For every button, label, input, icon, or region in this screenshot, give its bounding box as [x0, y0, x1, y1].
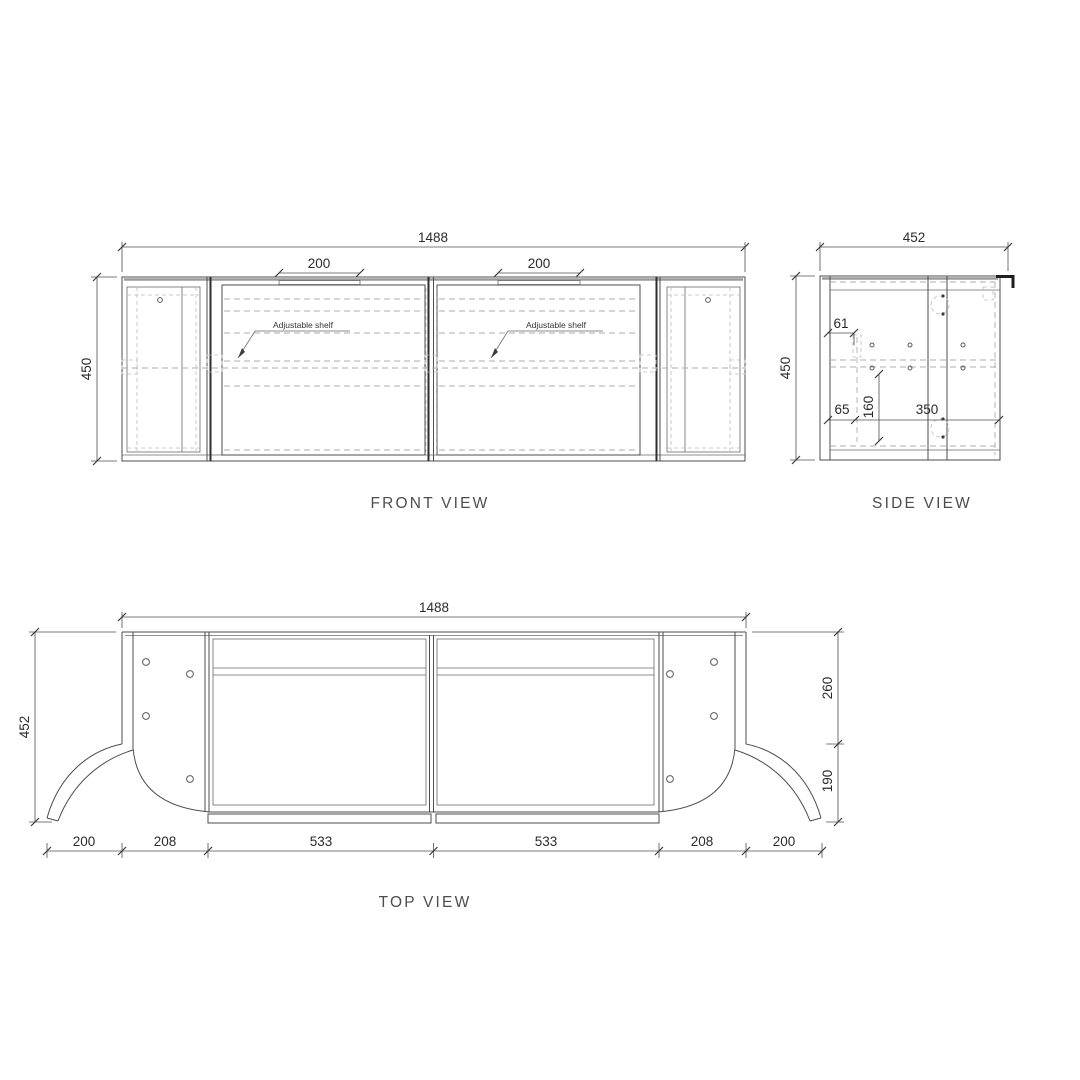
front-width-dim-label: 1488 — [418, 230, 448, 245]
top-door-fronts — [208, 814, 659, 823]
top-right-side-panel — [667, 632, 735, 782]
shelf-pin-hole — [908, 343, 912, 347]
side-bottom-dimension: 65 350 — [824, 402, 1003, 424]
side-top-offset-dimension: 61 — [824, 316, 858, 345]
top-dim-260-label: 260 — [820, 677, 835, 700]
top-bottom-dim-3: 533 — [535, 834, 558, 849]
side-dashed-detail — [830, 282, 1000, 446]
handle-notch-right — [498, 281, 580, 285]
handle-notch-left — [279, 281, 360, 285]
front-right-end-panel — [657, 277, 746, 461]
side-height-dimension: 450 — [778, 272, 815, 464]
top-bottom-dim-5: 200 — [773, 834, 796, 849]
screw-hole — [158, 298, 163, 303]
top-right-leg — [735, 744, 821, 821]
top-left-side-panel — [133, 632, 193, 782]
wall-hanger-bracket-icon — [996, 277, 1013, 289]
screw-hole — [187, 776, 194, 783]
screw-hole — [143, 659, 150, 666]
screw-hole — [143, 713, 150, 720]
top-bottom-dim-2: 533 — [310, 834, 333, 849]
top-view-title: TOP VIEW — [379, 894, 472, 911]
screw-hole — [711, 713, 718, 720]
adjustable-shelf-callout-left: Adjustable shelf — [238, 320, 350, 358]
top-left-leg — [47, 744, 133, 821]
hinge-circle — [931, 296, 949, 314]
hinge-circle — [931, 419, 949, 437]
screw-hole — [187, 671, 194, 678]
front-height-dimension: 450 — [79, 273, 117, 465]
side-shelf-pin-holes — [870, 343, 965, 370]
shelf-pin-hole — [961, 343, 965, 347]
adjustable-shelf-label-right: Adjustable shelf — [526, 320, 587, 330]
leader-arrowhead — [238, 348, 245, 358]
side-dim-65-label: 65 — [834, 402, 849, 417]
top-dim-190-label: 190 — [820, 770, 835, 793]
side-view-title: SIDE VIEW — [872, 495, 972, 512]
top-width-dim-label: 1488 — [419, 600, 449, 615]
technical-drawing-canvas: 1488 200 200 450 — [0, 0, 1080, 1080]
drawing-sheet: 1488 200 200 450 — [0, 0, 1080, 1080]
front-handle-left-dim-label: 200 — [308, 256, 331, 271]
front-handle-dimensions: 200 200 — [275, 256, 584, 277]
side-cabinet-outline — [820, 276, 1013, 460]
side-dim-61-label: 61 — [833, 316, 848, 331]
side-shelf-height-dimension: 160 — [861, 370, 883, 445]
top-bottom-dim-4: 208 — [691, 834, 714, 849]
top-bottom-dim-0: 200 — [73, 834, 96, 849]
screw-hole — [711, 659, 718, 666]
adjustable-shelf-label-left: Adjustable shelf — [273, 320, 334, 330]
top-bottom-dim-1: 208 — [154, 834, 177, 849]
side-width-dimension: 452 — [816, 230, 1012, 271]
side-dim-160-label: 160 — [861, 396, 876, 419]
side-height-dim-label: 450 — [778, 357, 793, 380]
front-view-title: FRONT VIEW — [370, 495, 489, 512]
adjustable-shelf-callout-right: Adjustable shelf — [491, 320, 603, 358]
screw-hole — [706, 298, 711, 303]
front-door-gap — [426, 277, 437, 461]
top-door-right — [436, 814, 659, 823]
front-handle-right-dim-label: 200 — [528, 256, 551, 271]
top-carcass-interior — [205, 632, 663, 812]
front-width-dimension: 1488 — [118, 230, 749, 272]
side-view: 452 450 — [778, 230, 1013, 512]
top-bottom-dimension-chain: 200 208 533 533 208 200 — [43, 834, 826, 858]
side-width-dim-label: 452 — [903, 230, 926, 245]
top-view: 1488 452 — [17, 600, 844, 911]
screw-hole — [667, 671, 674, 678]
front-left-end-panel — [122, 277, 211, 461]
top-door-left — [208, 814, 431, 823]
screw-hole — [667, 776, 674, 783]
top-width-dimension: 1488 — [118, 600, 750, 628]
top-depth-dimension: 452 — [17, 628, 116, 826]
side-dim-350-label: 350 — [916, 402, 939, 417]
front-height-dim-label: 450 — [79, 358, 94, 381]
front-view: 1488 200 200 450 — [79, 230, 749, 512]
top-depth-dim-label: 452 — [17, 716, 32, 739]
shelf-pin-hole — [870, 343, 874, 347]
leader-arrowhead — [491, 348, 498, 358]
